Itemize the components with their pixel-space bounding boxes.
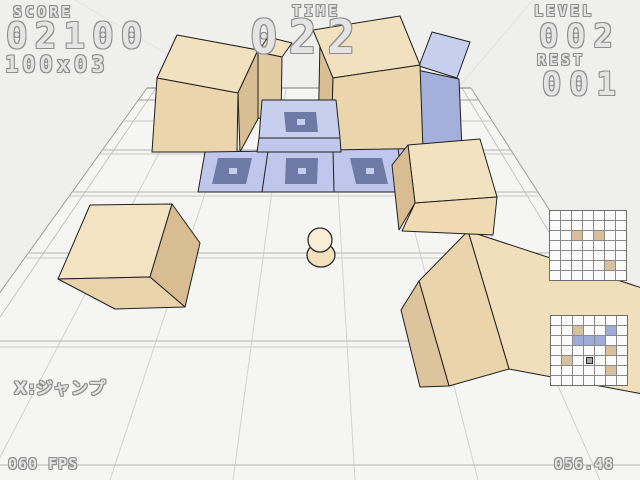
minimap-cell	[551, 366, 561, 375]
minimap-cell	[595, 316, 605, 325]
minimap-cell	[551, 316, 561, 325]
minimap-cell	[594, 231, 604, 240]
minimap-cell	[551, 356, 561, 365]
minimap-cell	[595, 326, 605, 335]
minimap-cell	[562, 326, 572, 335]
minimap-cell	[617, 366, 627, 375]
minimap-cell	[616, 211, 626, 220]
minimap-cell	[616, 231, 626, 240]
minimap-cell	[551, 376, 561, 385]
minimap-cell	[572, 251, 582, 260]
minimap-cell	[605, 251, 615, 260]
minimap-cell	[550, 231, 560, 240]
minimap-cell	[606, 356, 616, 365]
minimap-cell	[583, 251, 593, 260]
minimap-cell	[617, 316, 627, 325]
minimap-cell	[616, 271, 626, 280]
minimap-cell	[595, 336, 605, 345]
minimap-cell	[561, 231, 571, 240]
minimap-cell	[595, 346, 605, 355]
minimap-cell	[605, 241, 615, 250]
minimap-cell	[583, 211, 593, 220]
minimap-cell	[573, 376, 583, 385]
minimap-cell	[562, 336, 572, 345]
minimap-cell	[572, 221, 582, 230]
minimap-cell	[616, 251, 626, 260]
tan-cube-mid-right	[392, 139, 497, 235]
minimap-cell	[595, 356, 605, 365]
minimap-cell	[617, 356, 627, 365]
jump-hint-text: X:ジャンプ	[14, 374, 107, 399]
minimap-cell	[561, 241, 571, 250]
minimap-cell	[594, 211, 604, 220]
minimap-cell	[605, 221, 615, 230]
minimap-cell	[550, 261, 560, 270]
minimap-cell	[583, 231, 593, 240]
minimap-cell	[573, 316, 583, 325]
minimap-cell	[594, 271, 604, 280]
minimap-cell	[583, 261, 593, 270]
minimap-cell	[561, 221, 571, 230]
minimap-cell	[606, 376, 616, 385]
minimap-cell	[572, 231, 582, 240]
time-value: 022	[250, 10, 366, 64]
minimap-cell	[572, 241, 582, 250]
minimap-cell	[584, 326, 594, 335]
minimap-cell	[550, 271, 560, 280]
minimap-cell	[572, 261, 582, 270]
minimap-cell	[606, 346, 616, 355]
minimap-cell	[573, 346, 583, 355]
minimap-cell	[606, 336, 616, 345]
minimap-cell	[594, 261, 604, 270]
timer-detail: 056.48	[554, 455, 614, 473]
minimap-cell	[616, 241, 626, 250]
minimap-lower	[550, 315, 628, 386]
minimap-cell	[562, 366, 572, 375]
game-screen: SCORE 02100 100x03 TIME 022 LEVEL 002 RE…	[0, 0, 640, 480]
minimap-cell	[584, 346, 594, 355]
minimap-cell	[594, 251, 604, 260]
minimap-cell	[617, 326, 627, 335]
minimap-cell	[573, 336, 583, 345]
minimap-cell	[550, 251, 560, 260]
minimap-cell	[562, 356, 572, 365]
minimap-cell	[584, 376, 594, 385]
minimap-cell	[572, 211, 582, 220]
minimap-cell	[584, 316, 594, 325]
minimap-cell	[584, 356, 594, 365]
minimap-cell	[561, 271, 571, 280]
minimap-cell	[617, 346, 627, 355]
minimap-cell	[617, 376, 627, 385]
minimap-cell	[573, 356, 583, 365]
minimap-cell	[616, 261, 626, 270]
minimap-cell	[573, 366, 583, 375]
minimap-cell	[617, 336, 627, 345]
minimap-upper	[549, 210, 627, 281]
minimap-cell	[605, 271, 615, 280]
blue-cube-top-marker	[257, 100, 341, 152]
minimap-cell	[594, 221, 604, 230]
minimap-cell	[550, 211, 560, 220]
minimap-cell	[606, 326, 616, 335]
minimap-cell	[583, 271, 593, 280]
fps-counter: 060 FPS	[8, 455, 78, 473]
minimap-cell	[594, 241, 604, 250]
minimap-cell	[605, 261, 615, 270]
minimap-cell	[561, 211, 571, 220]
minimap-cell	[561, 261, 571, 270]
minimap-cell	[561, 251, 571, 260]
minimap-cell	[584, 366, 594, 375]
minimap-cell	[550, 241, 560, 250]
minimap-cell	[551, 336, 561, 345]
minimap-cell	[606, 316, 616, 325]
score-multiplier: 100x03	[5, 53, 108, 78]
minimap-cell	[562, 376, 572, 385]
score-value: 02100	[6, 16, 149, 57]
minimap-cell	[605, 211, 615, 220]
tower-back-left	[152, 35, 260, 152]
minimap-cell	[562, 316, 572, 325]
rest-value: 001	[542, 65, 624, 103]
minimap-cell	[562, 346, 572, 355]
minimap-cell	[606, 366, 616, 375]
minimap-cell	[584, 336, 594, 345]
player-character	[307, 228, 335, 267]
minimap-cell	[616, 221, 626, 230]
minimap-cell	[583, 241, 593, 250]
minimap-cell	[573, 326, 583, 335]
level-value: 002	[539, 17, 621, 55]
minimap-cell	[583, 221, 593, 230]
minimap-player-marker	[586, 357, 593, 364]
minimap-cell	[595, 376, 605, 385]
minimap-cell	[550, 221, 560, 230]
minimap-cell	[551, 326, 561, 335]
minimap-cell	[595, 366, 605, 375]
minimap-cell	[605, 231, 615, 240]
minimap-cell	[572, 271, 582, 280]
minimap-cell	[551, 346, 561, 355]
